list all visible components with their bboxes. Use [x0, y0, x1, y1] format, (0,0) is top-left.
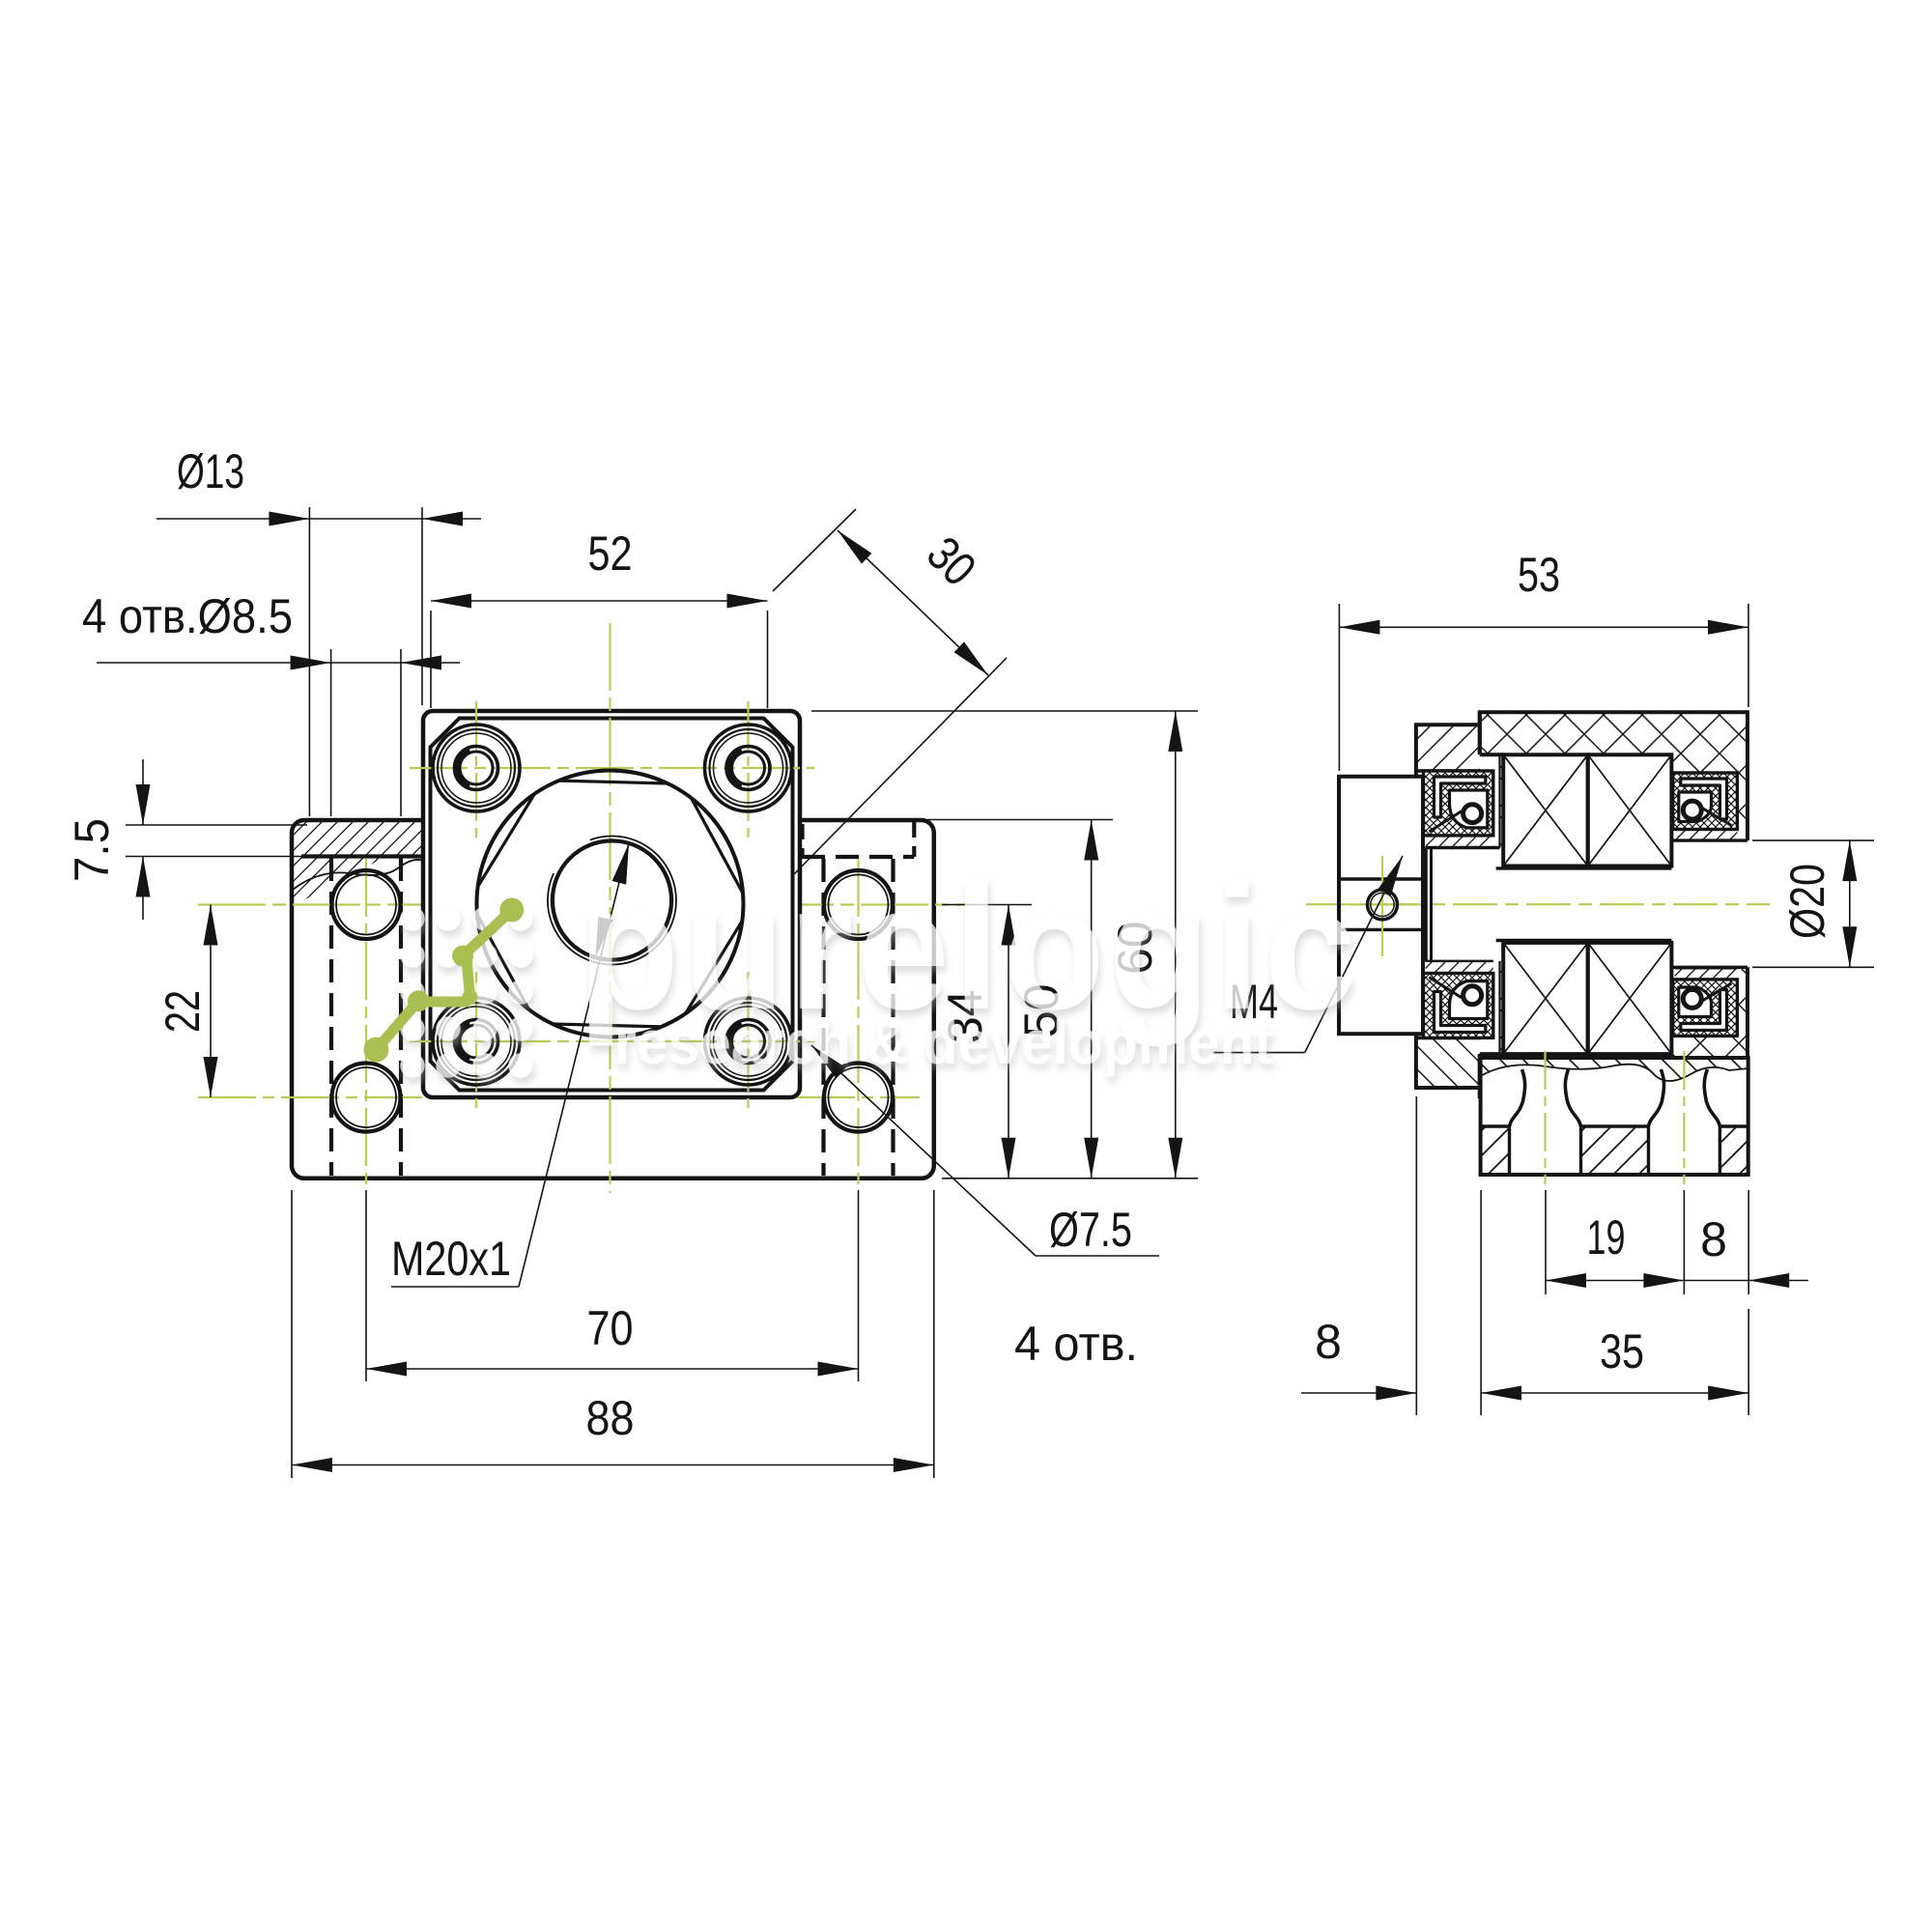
svg-text:Ø20: Ø20: [1780, 864, 1834, 939]
svg-text:4 отв.Ø8.5: 4 отв.Ø8.5: [82, 589, 293, 643]
svg-text:Ø7.5: Ø7.5: [1049, 1203, 1132, 1257]
svg-text:8: 8: [1700, 1212, 1727, 1266]
svg-text:19: 19: [1587, 1210, 1626, 1264]
svg-text:8: 8: [1315, 1315, 1342, 1369]
svg-text:7.5: 7.5: [65, 818, 119, 882]
svg-text:52: 52: [588, 526, 633, 581]
svg-text:4 отв.: 4 отв.: [1014, 1317, 1138, 1371]
svg-text:22: 22: [156, 990, 210, 1033]
svg-text:research & development: research & development: [614, 1008, 1273, 1077]
svg-text:88: 88: [586, 1391, 635, 1445]
svg-text:70: 70: [587, 1301, 634, 1355]
svg-text:35: 35: [1600, 1324, 1644, 1378]
svg-text:53: 53: [1518, 548, 1560, 602]
svg-text:Ø13: Ø13: [177, 444, 244, 498]
svg-text:M20x1: M20x1: [391, 1232, 511, 1286]
